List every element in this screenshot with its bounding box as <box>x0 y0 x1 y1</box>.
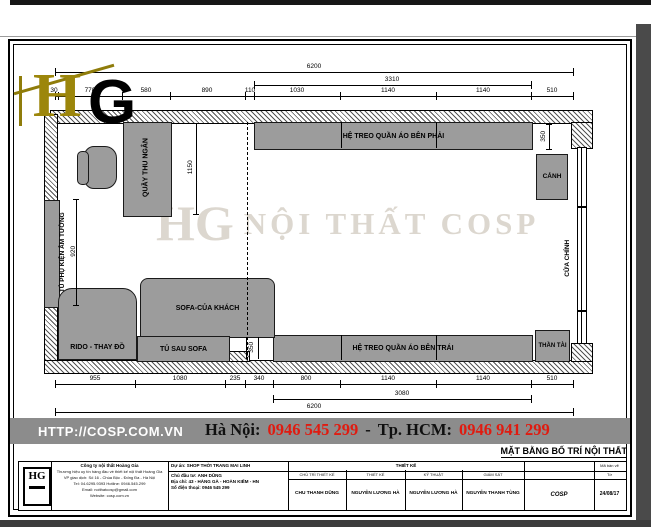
sheet-code-label: Mã bản vẽ <box>594 464 625 468</box>
dim-value: 890 <box>195 88 219 95</box>
dimension-line <box>55 412 573 413</box>
dim-tick <box>573 68 574 76</box>
dim-tick <box>55 408 56 416</box>
page-top-edge <box>0 36 651 37</box>
title-block-logo-text: HG <box>25 469 49 484</box>
wall-accessory-cabinet-label: TỦ PHỤ KIỆN ÂM TƯỜNG <box>60 197 67 307</box>
dim-value: 235 <box>223 376 247 383</box>
dimension-line <box>273 399 531 400</box>
title-block-logo: HG <box>23 467 51 506</box>
wall-accessory-cabinet <box>44 200 60 308</box>
sofa: SOFA-CỦA KHÁCH <box>140 278 275 338</box>
rail-divider <box>341 122 342 148</box>
rail-divider <box>436 335 437 360</box>
dim-tick <box>273 380 274 388</box>
dim-value: 1080 <box>168 376 192 383</box>
dim-tick <box>573 380 574 388</box>
rail-divider <box>436 122 437 148</box>
hanging-rail-left-label: HỆ TREO QUẦN ÁO BÊN TRÁI <box>352 345 453 352</box>
dim-tick <box>135 380 136 388</box>
main-door-panel <box>577 147 587 207</box>
dim-value: 350 <box>541 123 548 149</box>
plant-box-label: CẢNH <box>543 174 562 181</box>
dim-value: 340 <box>247 376 271 383</box>
title-block-divider <box>168 471 626 472</box>
dim-tick <box>436 380 437 388</box>
stamp: COSP <box>524 492 594 498</box>
company-address: VP giao dịch: Số 16 - Chùa Bộc - Đống Đa… <box>53 476 166 480</box>
dim-value: 920 <box>71 238 78 264</box>
main-door-label: CỬA CHÍNH <box>565 228 572 288</box>
cabinet-behind-sofa-label: TỦ SAU SOFA <box>160 346 207 353</box>
title-block-divider <box>168 462 169 510</box>
dim-value: 350 <box>249 334 256 360</box>
dim-value: 1140 <box>471 88 495 95</box>
dim-value: 580 <box>134 88 158 95</box>
hanging-rail-left: HỆ TREO QUẦN ÁO BÊN TRÁI <box>273 335 533 362</box>
company-email: Email: noithatcosp@gmail.com <box>53 488 166 492</box>
dimension-line <box>55 384 573 385</box>
dim-value: 510 <box>540 376 564 383</box>
dim-tick <box>193 214 199 215</box>
hanging-rail-right: HỆ TREO QUẦN ÁO BÊN PHẢI <box>254 122 533 150</box>
sheet-date: 24/08/17 <box>594 492 625 497</box>
company-phone: Tel: 04.6295.9393 Hotline: 0946.545.299 <box>53 482 166 486</box>
title-block-divider <box>51 462 52 510</box>
dim-tick <box>436 92 437 100</box>
role-label: CHỦ TRÌ THIẾT KẾ <box>288 473 346 477</box>
drawing-title: MẶT BẰNG BỐ TRÍ NỘI THẤT <box>501 446 628 458</box>
dim-tick <box>573 92 574 100</box>
sofa-label: SOFA-CỦA KHÁCH <box>176 305 240 312</box>
section-header: THIẾT KẾ <box>288 464 524 469</box>
dimension-line <box>254 85 531 86</box>
watermark-text: NỘI THẤT COSP <box>244 208 539 239</box>
title-block: HG Công ty nội thất Hoàng Gia Thương hiệ… <box>18 461 627 511</box>
staff-name: NGUYỄN THANH TÙNG <box>462 492 524 497</box>
dim-value: 1150 <box>188 154 195 180</box>
logo-post-line <box>19 76 22 126</box>
sheet-shadow-bottom <box>0 520 651 527</box>
dim-tick <box>340 380 341 388</box>
logo-letter-g: G <box>88 78 136 128</box>
watermark: HG NỘI THẤT COSP <box>156 198 539 248</box>
dimension-line <box>196 123 197 215</box>
main-door-panel <box>577 207 587 311</box>
hanoi-label: Hà Nội: <box>205 420 260 440</box>
dim-tick <box>170 92 171 100</box>
sheet-number-label: Tờ <box>594 473 625 477</box>
staff-name: CHU THANH DŨNG <box>288 492 346 497</box>
role-label: GIÁM SÁT <box>462 473 524 477</box>
title-block-divider <box>288 479 626 480</box>
hcm-phone: 0946 941 299 <box>459 420 550 440</box>
drawing-viewer: HG NỘI THẤT COSP H G QUẦY THU NGÂN TỦ PH… <box>0 0 651 527</box>
dim-tick <box>73 305 79 306</box>
dim-value: 110 <box>238 88 262 95</box>
dim-value: 1030 <box>285 88 309 95</box>
dim-tick <box>573 408 574 416</box>
wealth-altar-label: THẦN TÀI <box>539 343 567 349</box>
chair-back <box>77 151 89 185</box>
dim-tick <box>340 92 341 100</box>
contact-phones: Hà Nội: 0946 545 299 - Tp. HCM: 0946 941… <box>205 420 550 440</box>
dimension-line <box>549 124 550 150</box>
role-label: KỸ THUẬT <box>405 473 462 477</box>
dim-value: 1140 <box>376 376 400 383</box>
sheet-shadow-right <box>636 24 651 527</box>
wealth-altar: THẦN TÀI <box>535 330 570 362</box>
dim-value: 800 <box>294 376 318 383</box>
company-website: Website: cosp.com.vn <box>53 494 166 498</box>
website-url: HTTP://COSP.COM.VN <box>38 424 183 439</box>
staff-name: NGUYỄN LƯƠNG HÀ <box>405 492 462 497</box>
wall-corner-bottom-right <box>571 343 593 362</box>
dim-value: 6200 <box>302 404 326 411</box>
dimension-line <box>258 337 259 359</box>
dim-tick <box>531 92 532 100</box>
dim-tick <box>273 395 274 403</box>
title-block-divider <box>524 462 525 510</box>
dim-value: 510 <box>540 88 564 95</box>
company-slogan: Thương hiệu uy tín hàng đầu về thiết kế … <box>53 470 166 474</box>
logo-letter-h: H <box>33 72 81 122</box>
dim-tick <box>531 380 532 388</box>
dim-tick <box>73 199 79 200</box>
role-label: THIẾT KẾ <box>346 473 405 477</box>
phone-separator: - <box>365 420 371 440</box>
division-dashed-line <box>247 122 248 360</box>
wall-bottom <box>44 360 593 374</box>
cabinet-behind-sofa: TỦ SAU SOFA <box>137 336 230 362</box>
dim-value: 1140 <box>376 88 400 95</box>
wall-corner-top-right <box>571 122 593 149</box>
window-top-edge <box>10 0 651 5</box>
hanoi-phone: 0946 545 299 <box>267 420 358 440</box>
dim-tick <box>55 380 56 388</box>
dim-tick <box>531 81 532 89</box>
dim-value: 1140 <box>471 376 495 383</box>
main-door-panel <box>577 311 587 344</box>
dim-value: 3080 <box>390 391 414 398</box>
dim-value: 3310 <box>380 77 404 84</box>
dim-value: 6200 <box>302 64 326 71</box>
hanging-rail-right-label: HỆ TREO QUẦN ÁO BÊN PHẢI <box>343 133 445 140</box>
dim-tick <box>193 123 199 124</box>
dim-value: 955 <box>83 376 107 383</box>
plant-box: CẢNH <box>536 154 568 200</box>
title-block-divider <box>594 462 595 510</box>
cashier-counter-label: QUẦY THU NGÂN <box>143 128 150 208</box>
rail-divider <box>341 335 342 360</box>
staff-name: NGUYỄN LƯƠNG HÀ <box>346 492 405 497</box>
title-block-divider <box>288 462 289 510</box>
dim-tick <box>531 395 532 403</box>
project-name: Dự án: SHOP THỜI TRANG MAI LINH <box>171 464 286 469</box>
hcm-label: Tp. HCM: <box>378 420 452 440</box>
project-phone: Số điện thoại: 0946 545 299 <box>171 486 286 491</box>
changing-room-label: RIDO - THAY ĐỒ <box>70 344 124 351</box>
title-block-logo-bar <box>29 486 45 489</box>
changing-room: RIDO - THAY ĐỒ <box>58 288 137 360</box>
